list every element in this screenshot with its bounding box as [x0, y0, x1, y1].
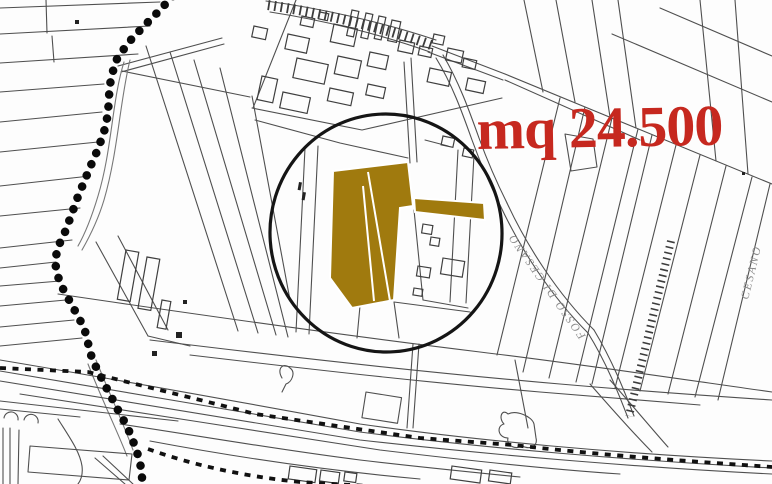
street-label-fosso: FOSSO DI CESANO — [506, 231, 589, 342]
cadastral-map: FOSSO DI CESANO CESANO mq 24.500 — [0, 0, 772, 484]
highlighted-parcel — [330, 162, 485, 308]
street-label-cesano: CESANO — [739, 244, 764, 301]
railway-dash-upper — [0, 368, 772, 467]
area-measurement-label: mq 24.500 — [476, 93, 723, 162]
railway-dash-lower — [148, 449, 368, 484]
hatched-road-top — [268, 5, 434, 46]
highlighted-parcel-main — [330, 162, 413, 308]
highlighted-parcel-band — [414, 198, 485, 220]
map-canvas: FOSSO DI CESANO CESANO mq 24.500 — [0, 0, 772, 484]
railway-dashed-lines — [0, 368, 772, 484]
municipal-boundary-dotted-line — [55, 0, 173, 484]
